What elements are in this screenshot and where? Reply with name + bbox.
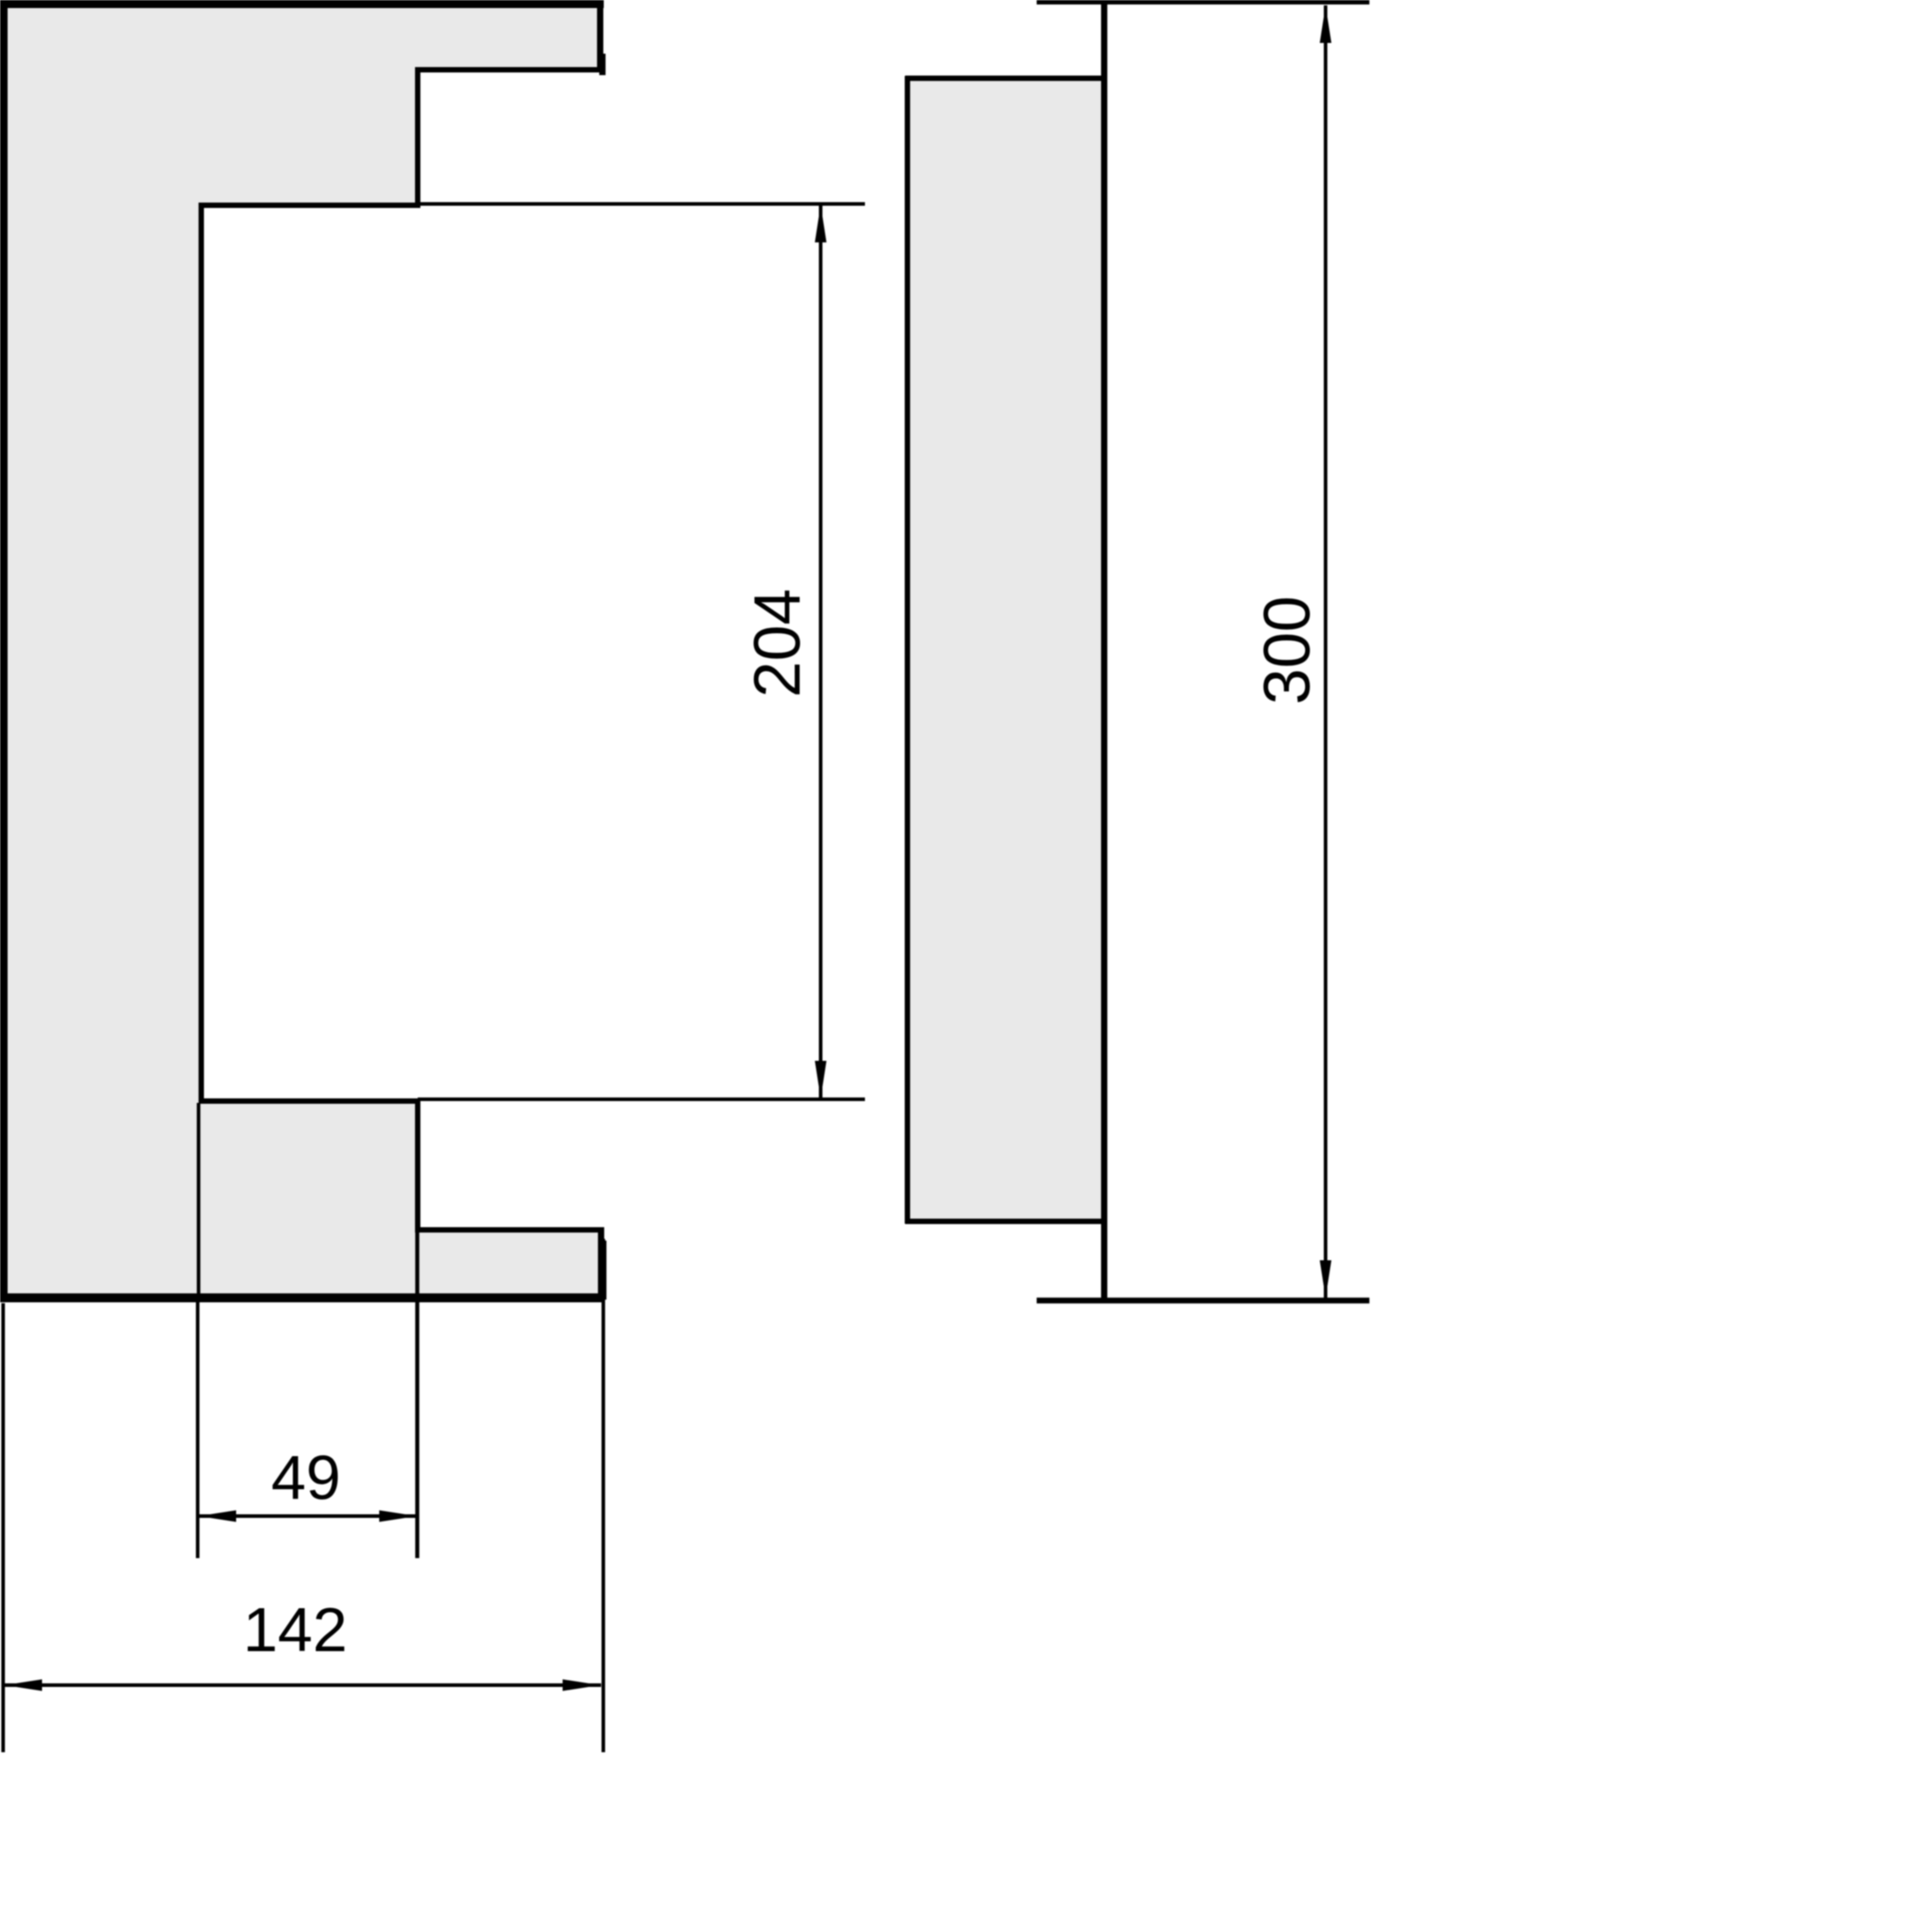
svg-text:49: 49: [271, 1443, 341, 1513]
svg-text:204: 204: [741, 589, 814, 698]
svg-text:142: 142: [243, 1595, 348, 1665]
svg-text:300: 300: [1251, 596, 1324, 705]
